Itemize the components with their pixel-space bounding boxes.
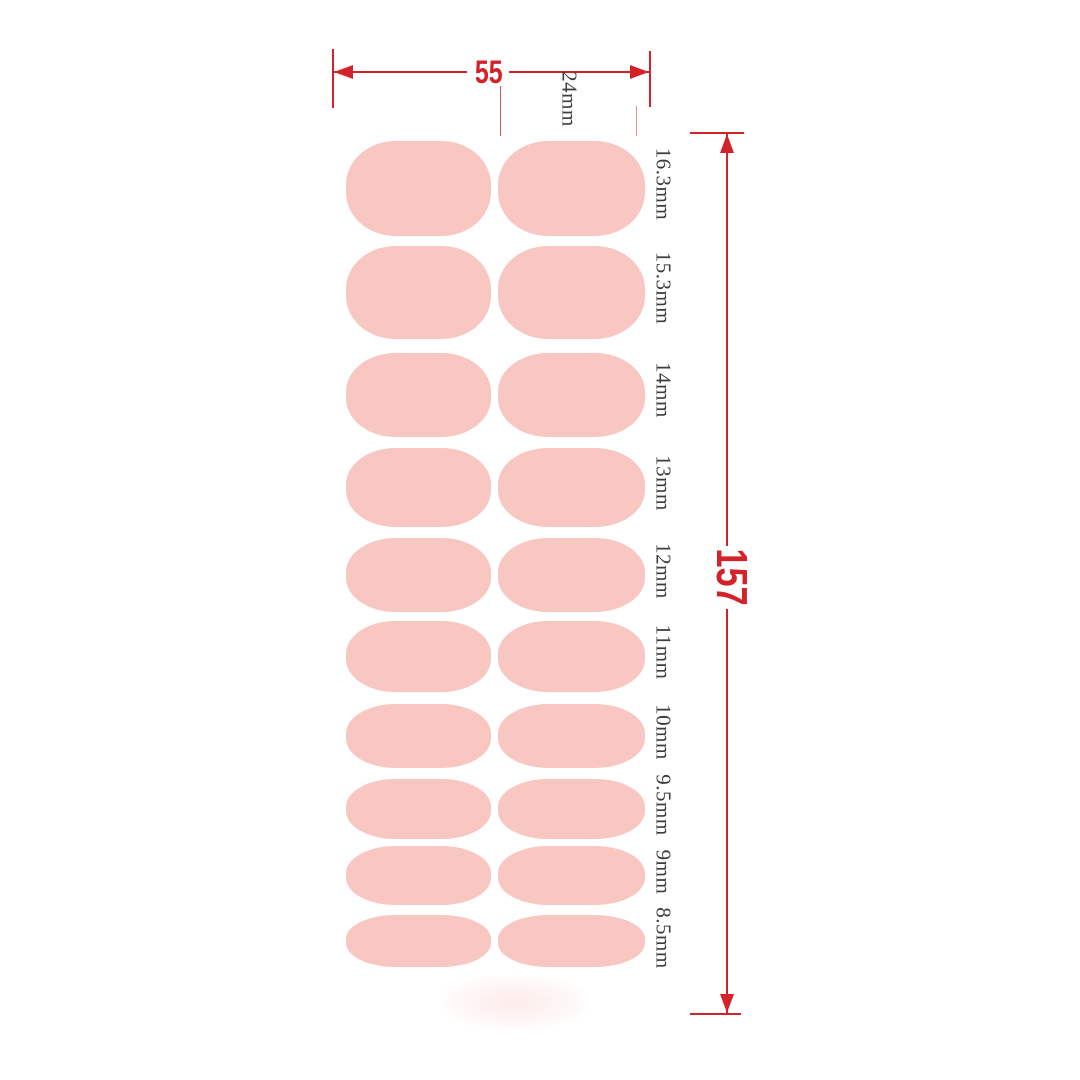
nail-sticker-row4-right — [498, 448, 645, 527]
nail-sticker-row3-right — [498, 353, 645, 437]
tick-line-top — [690, 132, 744, 134]
dimension-line-height-bottom-segment — [726, 609, 728, 1013]
nail-sticker-row6-left — [346, 621, 491, 692]
dimension-height-text: 157 — [709, 548, 753, 605]
nail-size-label-row3: 14mm — [653, 362, 674, 418]
nail-sticker-row2-left — [346, 246, 491, 339]
nail-size-chart: 55 24mm 157 16.3mm 15.3mm 14mm 13mm 12mm… — [0, 0, 1080, 1080]
nail-sticker-row2-right — [498, 246, 645, 339]
nail-size-label-row4: 13mm — [653, 455, 674, 511]
nail-sticker-row10-left — [346, 915, 491, 967]
nail-sticker-row9-left — [346, 846, 491, 905]
nail-size-label-row5: 12mm — [653, 543, 674, 599]
nail-sticker-row6-right — [498, 621, 645, 692]
arrowhead-down-icon — [720, 994, 734, 1013]
extension-line-inner-left — [500, 86, 501, 136]
nail-sticker-row5-left — [346, 538, 491, 612]
nail-sticker-row7-left — [346, 704, 491, 768]
extension-line-right — [649, 51, 651, 107]
nail-sticker-row9-right — [498, 846, 645, 905]
dimension-inner-width-label: 24mm — [559, 71, 580, 127]
nail-sticker-row1-right — [498, 141, 645, 236]
nail-sticker-row1-left — [346, 141, 491, 236]
nail-sticker-row7-right — [498, 704, 645, 768]
nail-sticker-row5-right — [498, 538, 645, 612]
arrowhead-left-icon — [334, 65, 353, 79]
arrowhead-up-icon — [720, 134, 734, 153]
nail-sticker-row8-left — [346, 779, 491, 839]
nail-sticker-row8-right — [498, 779, 645, 839]
nail-size-label-row7: 10mm — [653, 704, 674, 760]
nail-size-label-row2: 15.3mm — [653, 252, 674, 324]
nail-sticker-row10-right — [498, 915, 645, 967]
dimension-line-height-top-segment — [726, 134, 728, 546]
extension-line-inner-right — [636, 106, 637, 136]
dimension-width-text: 55 — [475, 56, 503, 88]
faint-smudge — [440, 975, 590, 1030]
nail-sticker-row3-left — [346, 353, 491, 437]
dimension-height-value: 157 — [709, 540, 753, 613]
nail-size-label-row10: 8.5mm — [653, 907, 674, 968]
nail-size-label-row6: 11mm — [653, 625, 674, 680]
nail-size-label-row1: 16.3mm — [653, 148, 674, 220]
nail-size-label-row9: 9mm — [653, 850, 674, 895]
arrowhead-right-icon — [630, 65, 649, 79]
nail-sticker-row4-left — [346, 448, 491, 527]
nail-size-label-row8: 9.5mm — [653, 774, 674, 835]
dimension-width-value: 55 — [461, 56, 517, 88]
tick-line-bottom — [690, 1013, 741, 1015]
dimension-line-width-left-segment — [333, 71, 467, 73]
